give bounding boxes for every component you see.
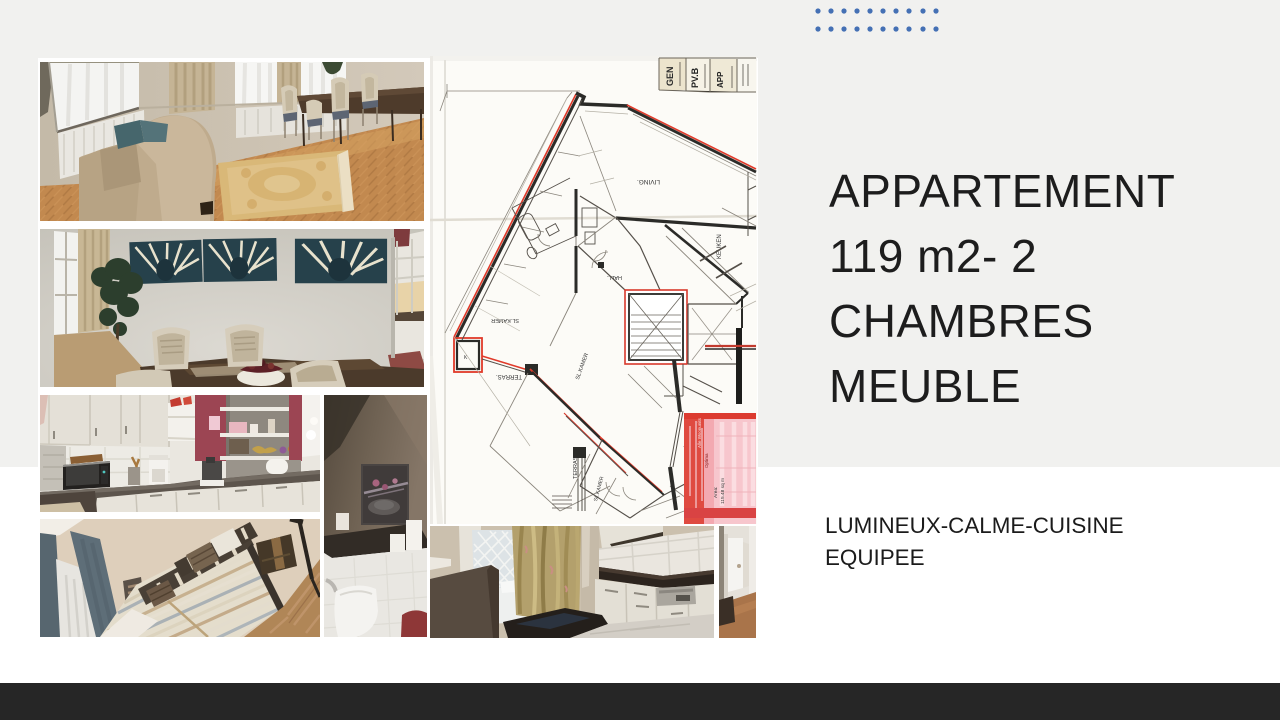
svg-text:GEN: GEN bbox=[665, 66, 675, 86]
svg-text:115.48 sq m: 115.48 sq m bbox=[720, 478, 726, 504]
svg-text:TERRAS.: TERRAS. bbox=[496, 373, 522, 379]
svg-text:Area:: Area: bbox=[713, 487, 719, 498]
svg-text:Optima: Optima bbox=[704, 453, 709, 468]
svg-text:TERRAS: TERRAS bbox=[573, 456, 579, 479]
svg-text:PV.B: PV.B bbox=[690, 67, 700, 88]
svg-text:Alle Woonunits: Alle Woonunits bbox=[697, 417, 702, 448]
svg-text:SL.KAMER: SL.KAMER bbox=[491, 317, 519, 323]
svg-text:LIVING.: LIVING. bbox=[637, 178, 660, 185]
svg-text:APP: APP bbox=[716, 71, 725, 88]
svg-text:KEUKEN: KEUKEN bbox=[717, 234, 723, 259]
